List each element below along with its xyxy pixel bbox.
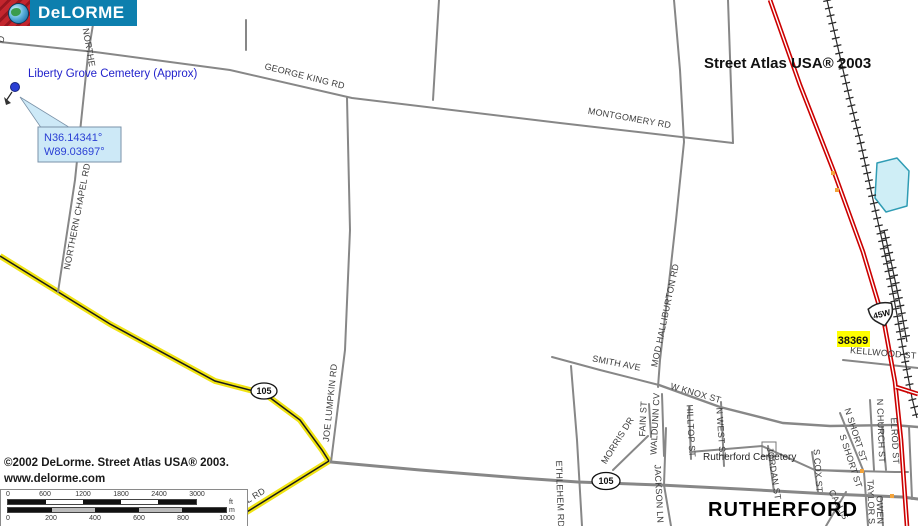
road-top-vertical — [433, 0, 439, 100]
route-105-marker-nw: 105 — [251, 383, 277, 399]
road-label-n-church: N CHURCH ST — [875, 399, 887, 464]
scale-bar: 0 600 1200 1800 2400 3000 ft m 0 200 400… — [0, 489, 248, 526]
scale-tick: 2400 — [151, 491, 167, 498]
road-label-s-cox: S COX ST — [811, 449, 824, 494]
road-label-northe: NORTHE — [81, 27, 98, 67]
us-45w-shield: 45W — [867, 300, 896, 328]
road-yellow-route — [0, 256, 329, 526]
road-label-jackson: JACKSON LN — [652, 464, 665, 523]
website-line: www.delorme.com — [4, 473, 105, 485]
road-label-northern-chapel: NORTHERN CHAPEL RD — [62, 162, 93, 270]
gps-lat: N36.14341° — [44, 132, 102, 144]
road-label-mod-halliburton: MOD HALLIBURTON RD — [649, 263, 681, 368]
scale-tick: 3000 — [189, 491, 205, 498]
map-pin-marker[interactable] — [4, 83, 20, 106]
scale-tick: 1800 — [113, 491, 129, 498]
road-label-hilltop: HILLTOP ST — [685, 404, 698, 457]
globe-icon — [8, 3, 29, 24]
city-label-rutherford: RUTHERFORD — [708, 499, 858, 521]
scale-tick: 1000 — [219, 515, 235, 522]
road-label-waldunn: WALDUNN CV — [648, 393, 661, 456]
road-label-n-west: N WEST ST — [714, 407, 728, 459]
pond-water — [875, 158, 909, 212]
logo-brand-text: DeLORME — [30, 0, 137, 26]
road-frontage — [909, 427, 912, 499]
road-label-elrod: ELROD ST — [889, 417, 901, 464]
scale-ft-bar — [7, 499, 197, 505]
road-n-church — [870, 400, 874, 470]
road-label-owen: OWEN — [874, 495, 885, 524]
scale-tick: 600 — [133, 515, 145, 522]
road-label-joe-lumpkin: JOE LUMPKIN RD — [321, 363, 339, 442]
gps-callout: N36.14341° W89.03697° — [20, 97, 121, 162]
scale-m-unit: m — [229, 507, 235, 514]
scale-m-bar — [7, 507, 227, 513]
road-label-morris: MORRIS DR — [599, 415, 636, 466]
route-105-nw-label: 105 — [256, 386, 271, 396]
logo-red-panel — [0, 0, 30, 26]
map-canvas[interactable]: 105 105 45W 38369 D NORTHE GEORGE KING R… — [0, 0, 918, 526]
map-window: 105 105 45W 38369 D NORTHE GEORGE KING R… — [0, 0, 918, 526]
scale-m-ticks: 0 200 400 600 800 1000 — [1, 515, 247, 523]
scale-ft-ticks: 0 600 1200 1800 2400 3000 — [1, 491, 247, 499]
gps-lon: W89.03697° — [44, 146, 105, 158]
road-label-bethlehem: ETHLEHEM RD — [554, 460, 566, 526]
road-label-fain: FAIN ST — [637, 401, 649, 437]
edition-title: Street Atlas USA® 2003 — [704, 55, 871, 72]
scale-tick: 0 — [6, 515, 10, 522]
scale-tick: 400 — [89, 515, 101, 522]
road-label-kellwood: KELLWOOD ST — [850, 345, 917, 361]
route-105-marker-main: 105 — [592, 473, 620, 490]
rutherford-cemetery-label: Rutherford Cemetery — [703, 452, 796, 463]
delorme-logo: DeLORME — [0, 0, 137, 26]
route-105-main-label: 105 — [598, 476, 613, 486]
copyright-line: ©2002 DeLorme. Street Atlas USA® 2003. — [4, 457, 229, 469]
road-label-w-knox: W KNOX ST — [669, 381, 722, 405]
scale-tick: 800 — [177, 515, 189, 522]
scale-ft-unit: ft — [229, 499, 233, 506]
road-waldunn — [662, 394, 664, 456]
scale-tick: 0 — [6, 491, 10, 498]
scale-tick: 600 — [39, 491, 51, 498]
road-bethlehem — [571, 366, 582, 526]
scale-tick: 200 — [45, 515, 57, 522]
liberty-grove-label: Liberty Grove Cemetery (Approx) — [28, 68, 198, 80]
scale-tick: 1200 — [75, 491, 91, 498]
